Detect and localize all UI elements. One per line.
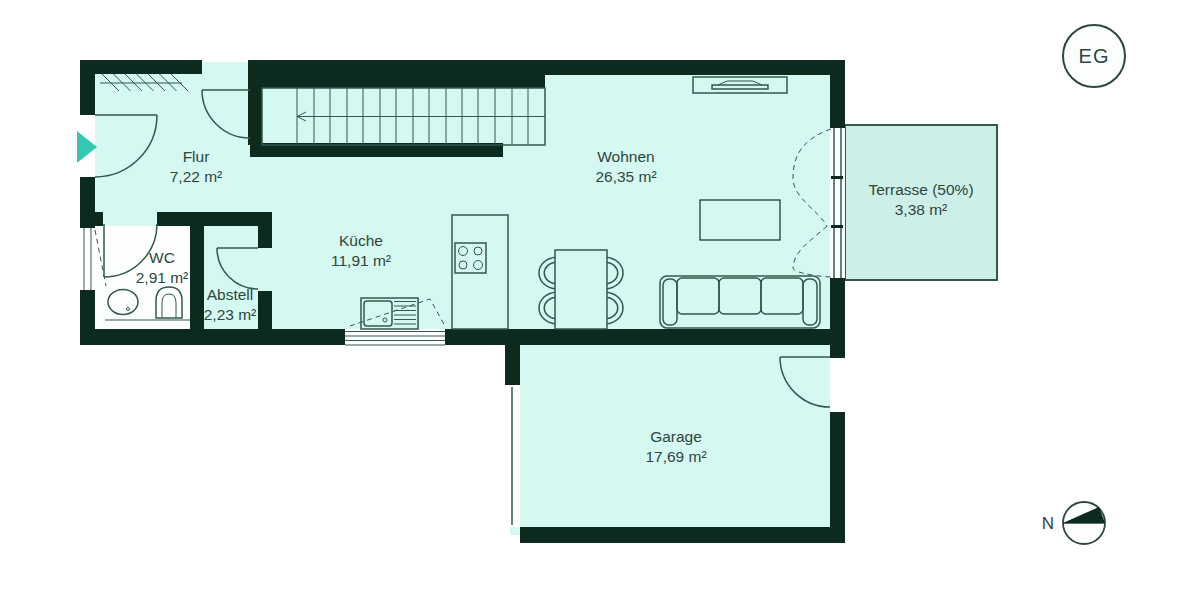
- room-area: 11,91 m²: [331, 251, 391, 271]
- sideboard: [693, 77, 787, 93]
- terrace-door-frame: [830, 128, 845, 278]
- compass-north-label: N: [1042, 514, 1054, 533]
- room-name: Garage: [645, 427, 706, 447]
- kitchen-sink-icon: [361, 298, 418, 329]
- floor-plan: EG N Flur 7,22 m² WC 2,91 m² Abstell 2,2…: [0, 0, 1200, 600]
- garage-door: [505, 385, 520, 527]
- room-area: 17,69 m²: [645, 447, 706, 467]
- room-label-kueche: Küche 11,91 m²: [331, 231, 391, 271]
- room-name: Küche: [331, 231, 391, 251]
- room-area: 2,23 m²: [204, 305, 257, 325]
- room-area: 2,91 m²: [136, 268, 189, 288]
- room-label-wc: WC 2,91 m²: [136, 248, 189, 288]
- dining-table: [555, 250, 607, 329]
- room-area: 7,22 m²: [170, 167, 223, 187]
- floor-badge: EG: [1063, 25, 1125, 87]
- room-label-garage: Garage 17,69 m²: [645, 427, 706, 467]
- room-name: Terrasse (50%): [868, 180, 973, 200]
- room-label-terrasse: Terrasse (50%) 3,38 m²: [868, 180, 973, 220]
- room-area: 3,38 m²: [868, 200, 973, 220]
- room-area: 26,35 m²: [595, 167, 656, 187]
- floor-plan-drawing: EG N: [0, 0, 1200, 600]
- floor-badge-label: EG: [1079, 45, 1110, 67]
- room-label-abstell: Abstell 2,23 m²: [204, 285, 257, 325]
- room-label-flur: Flur 7,22 m²: [170, 147, 223, 187]
- room-name: Wohnen: [595, 147, 656, 167]
- room-name: WC: [136, 248, 189, 268]
- north-compass-icon: N: [1042, 502, 1105, 544]
- room-name: Flur: [170, 147, 223, 167]
- room-label-wohnen: Wohnen 26,35 m²: [595, 147, 656, 187]
- room-name: Abstell: [204, 285, 257, 305]
- kitchen-window: [345, 329, 445, 345]
- garage-side-door-opening: [830, 358, 845, 412]
